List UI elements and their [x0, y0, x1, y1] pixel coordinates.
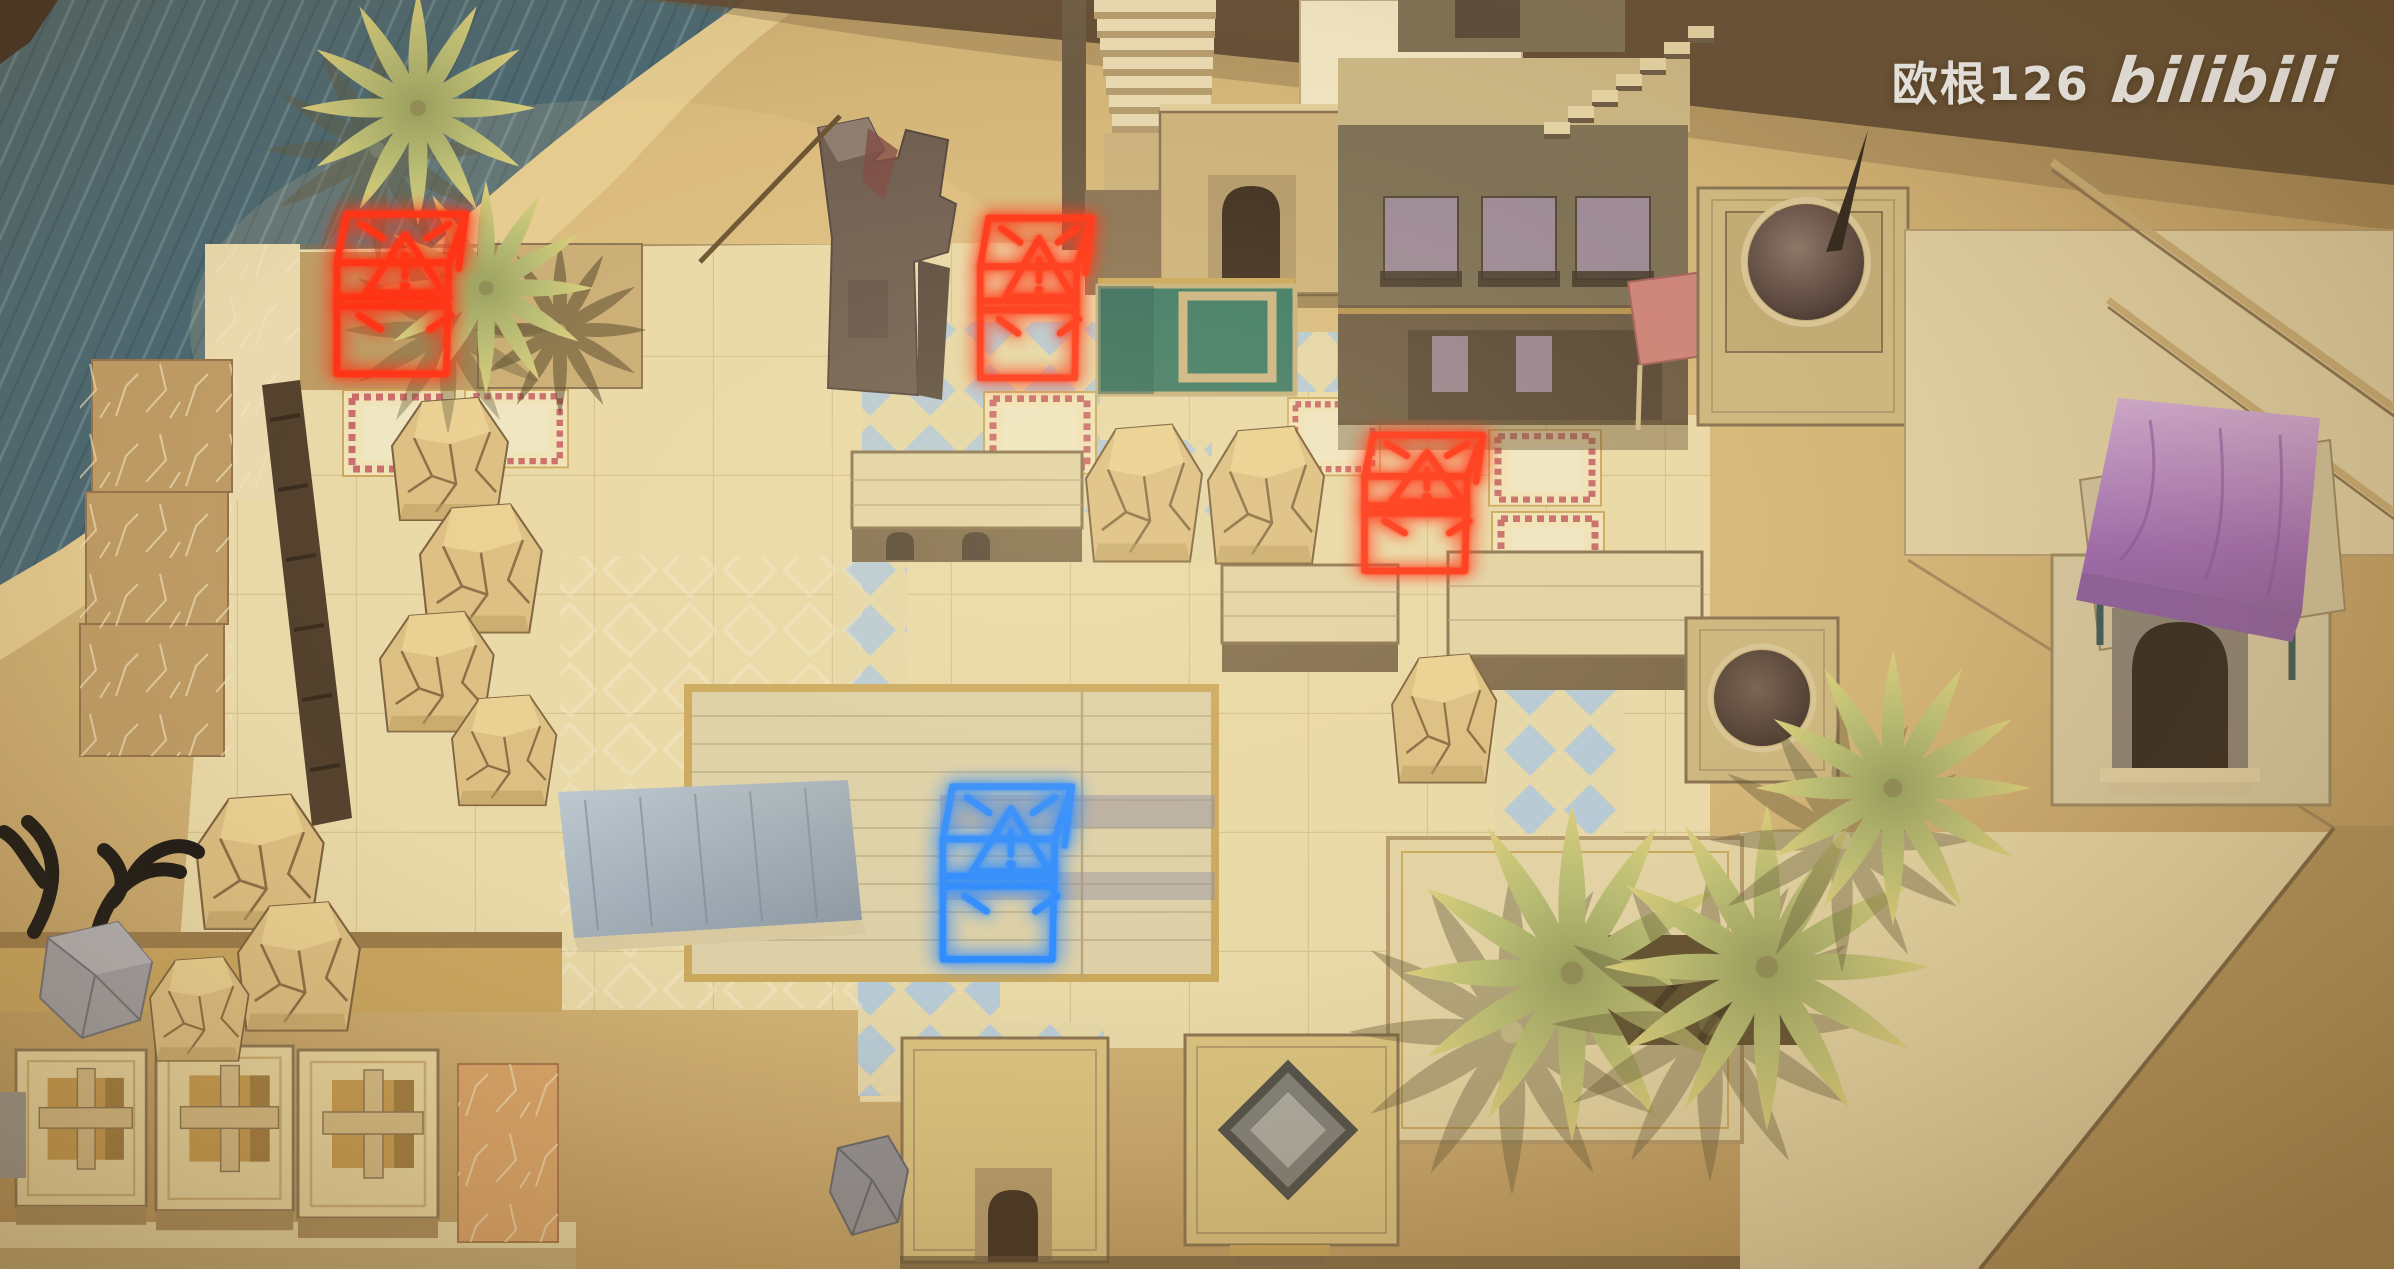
house-b	[1185, 1035, 1398, 1266]
arch-gate	[2132, 622, 2228, 768]
cross-window-kiosk	[16, 1050, 146, 1225]
stall-platform	[852, 452, 1082, 562]
mauve-window-building	[1338, 0, 1714, 450]
arch-door-building	[1160, 104, 1342, 308]
stall-platform	[1448, 552, 1702, 690]
cross-window-kiosk	[298, 1050, 438, 1238]
brown-paved-tiles	[80, 360, 232, 756]
small-dome-tower	[1686, 618, 1838, 782]
green-pool	[1098, 278, 1295, 394]
arched-door	[988, 1190, 1038, 1262]
house-a	[902, 1038, 1108, 1262]
cross-window-kiosk	[156, 1046, 293, 1230]
scene-svg	[0, 0, 2394, 1269]
blue-ramp-awning	[558, 780, 866, 952]
grey-slab	[0, 1092, 26, 1178]
street-awning	[1408, 330, 1662, 420]
bottom-shadow-band	[900, 1256, 1740, 1269]
blue-tile-patch	[1495, 684, 1623, 834]
stall-platform	[1222, 565, 1398, 672]
mauve-windows	[1380, 197, 1654, 287]
game-viewport[interactable]: 欧根126 bilibili	[0, 0, 2394, 1269]
